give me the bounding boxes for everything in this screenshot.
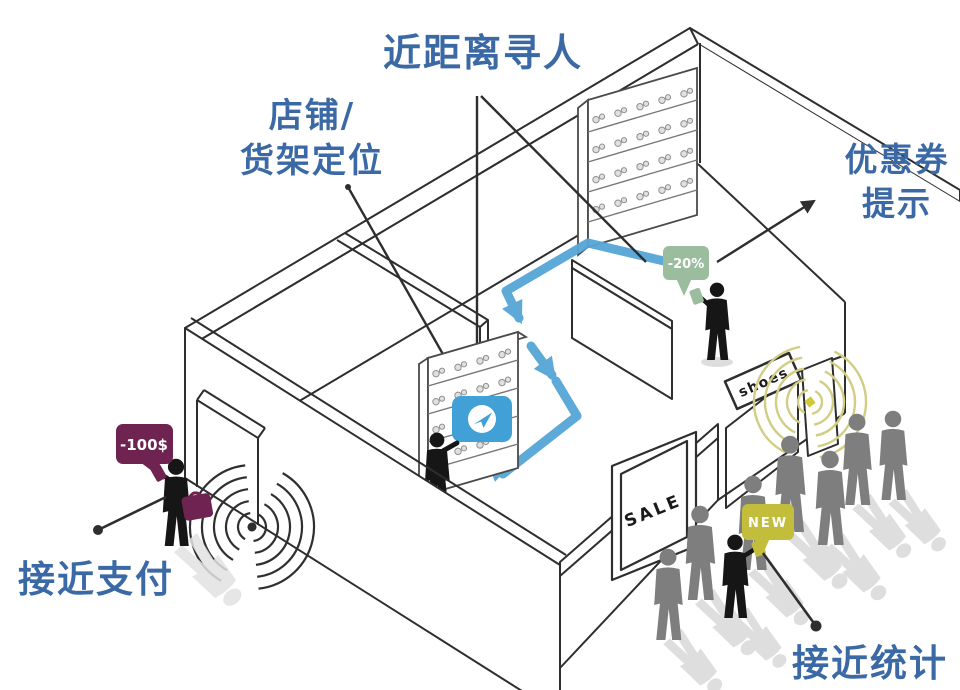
coupon-bubble-text: -20% <box>668 257 705 272</box>
label-coupon: 优惠券 提示 <box>787 138 960 225</box>
label-stats: 接近统计 <box>780 640 960 689</box>
partition-b-face <box>572 268 672 399</box>
coupon-bubble: -20% <box>663 246 709 296</box>
payment-bubble: -100$ <box>116 424 173 480</box>
crowd-figure <box>816 451 845 545</box>
label-shelf-location: 店铺/ 货架定位 <box>192 94 432 184</box>
store-beacon-diagram: -20% <box>0 0 960 690</box>
crowd-figure <box>880 411 908 500</box>
navigation-badge <box>452 396 512 442</box>
coupon-phone <box>689 287 704 305</box>
leader-payment <box>93 497 166 535</box>
new-bubble-text: NEW <box>748 516 788 531</box>
payment-bubble-text: -100$ <box>120 436 168 454</box>
label-find-person: 近距离寻人 <box>352 28 614 78</box>
coupon-shopper: -20% <box>663 246 733 367</box>
label-payment: 接近支付 <box>6 556 186 605</box>
